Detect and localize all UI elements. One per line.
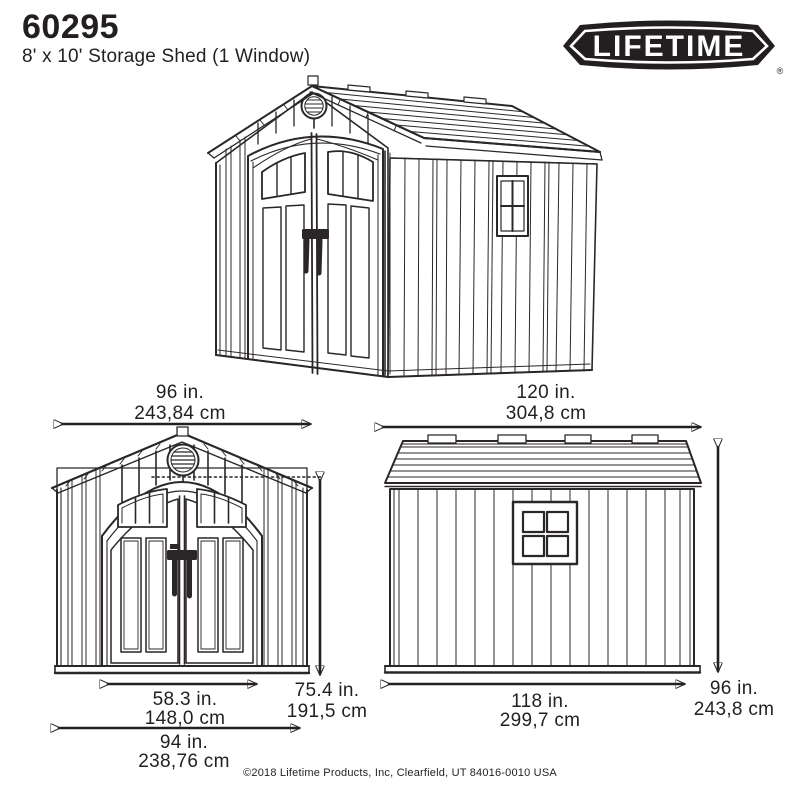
door-width-cm: 148,0 cm <box>145 710 226 728</box>
base-width-in: 94 in. <box>138 734 229 752</box>
door-width-in: 58.3 in. <box>145 691 226 709</box>
base-width-label: 94 in. 238,76 cm <box>138 734 229 771</box>
side-length-in: 120 in. <box>506 383 587 403</box>
copyright-line: ©2018 Lifetime Products, Inc, Clearfield… <box>243 767 557 779</box>
door-width-label: 58.3 in. 148,0 cm <box>145 691 226 728</box>
shed-3d-perspective-drawing <box>208 76 602 377</box>
diagram-canvas <box>0 0 800 800</box>
side-length-label: 120 in. 304,8 cm <box>506 383 587 424</box>
side-height-cm: 243,8 cm <box>694 700 775 720</box>
side-window <box>513 502 577 564</box>
shed-front-elevation-drawing <box>52 427 312 673</box>
front-height-in: 75.4 in. <box>287 681 368 701</box>
side-base-cm: 299,7 cm <box>500 712 581 730</box>
side-height-label: 96 in. 243,8 cm <box>694 679 775 720</box>
front-height-cm: 191,5 cm <box>287 702 368 722</box>
side-base-in: 118 in. <box>500 693 581 711</box>
shed-side-elevation-drawing <box>385 435 701 673</box>
side-length-cm: 304,8 cm <box>506 404 587 424</box>
spec-sheet-page: 60295 8' x 10' Storage Shed (1 Window) L… <box>0 0 800 800</box>
front-height-label: 75.4 in. 191,5 cm <box>287 681 368 722</box>
side-height-in: 96 in. <box>694 679 775 699</box>
front-width-cm: 243,84 cm <box>134 404 225 424</box>
front-width-in: 96 in. <box>134 383 225 403</box>
side-window-3d <box>497 176 528 236</box>
side-base-label: 118 in. 299,7 cm <box>500 693 581 730</box>
front-width-label: 96 in. 243,84 cm <box>134 383 225 424</box>
base-width-cm: 238,76 cm <box>138 753 229 771</box>
